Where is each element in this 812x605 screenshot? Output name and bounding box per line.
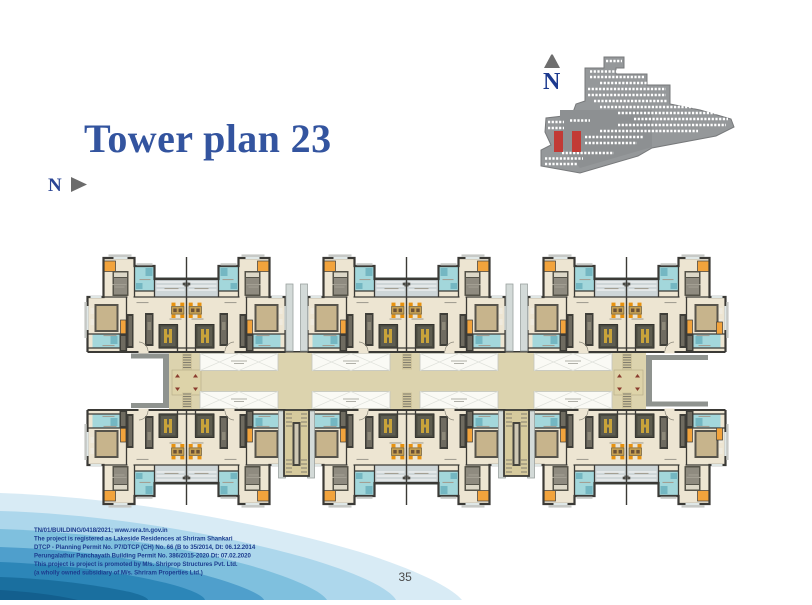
svg-text:The project is registered as L: The project is registered as Lakeside Re…	[34, 536, 233, 543]
svg-text:Perungalathur Panchayath Build: Perungalathur Panchayath Building Permit…	[34, 553, 251, 560]
svg-text:TN/01/BUILDING/0418/2021; www.: TN/01/BUILDING/0418/2021; www.rera.tn.go…	[34, 527, 168, 534]
svg-text:DTCP - Planning Permit No. P7/: DTCP - Planning Permit No. P7/DTCP (CH) …	[34, 544, 256, 551]
svg-text:Tower plan 23: Tower plan 23	[84, 116, 332, 161]
svg-text:(a wholly owned subsidiary of: (a wholly owned subsidiary of M/s. Shrir…	[34, 570, 203, 577]
svg-text:N: N	[48, 175, 62, 196]
svg-text:N: N	[543, 69, 561, 95]
svg-text:35: 35	[399, 570, 413, 584]
svg-text:This project is project is pro: This project is project is promoted by M…	[34, 561, 238, 568]
